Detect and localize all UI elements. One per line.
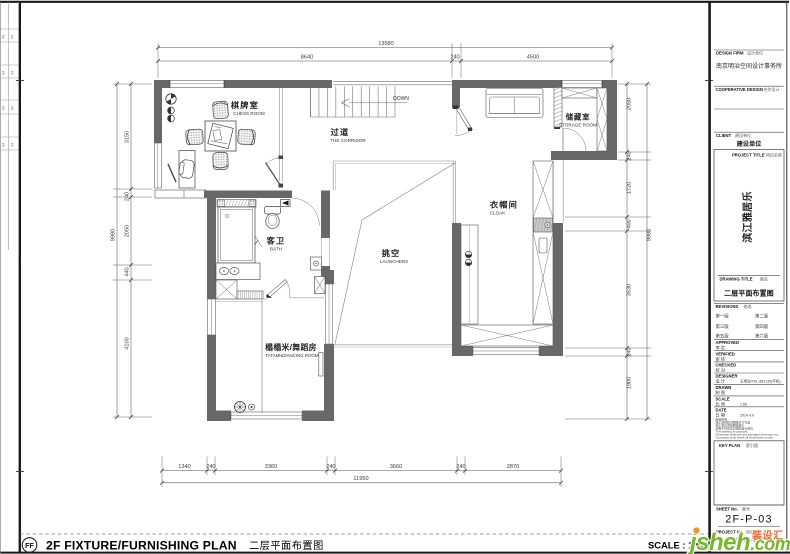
svg-text:3530: 3530	[627, 284, 633, 296]
svg-text:审 定: 审 定	[716, 344, 726, 351]
svg-text:8640: 8640	[301, 55, 313, 61]
svg-text:2F-P-03: 2F-P-03	[725, 514, 772, 526]
svg-text:1900: 1900	[627, 377, 633, 389]
svg-text:客卫: 客卫	[266, 236, 286, 246]
svg-text:400: 400	[627, 219, 633, 228]
svg-text:过道: 过道	[331, 127, 350, 137]
svg-text:11950: 11950	[353, 476, 368, 482]
svg-text:衣帽间: 衣帽间	[490, 200, 518, 210]
svg-text:设 计: 设 计	[716, 378, 726, 385]
svg-text:设计单位: 设计单位	[747, 50, 763, 56]
svg-text:第四版: 第四版	[755, 323, 769, 330]
svg-text:A3: A3	[2, 71, 6, 75]
svg-text:2014.4.9: 2014.4.9	[740, 413, 754, 417]
svg-text:装设汇: 装设汇	[751, 529, 784, 542]
svg-text:第六版: 第六版	[755, 333, 769, 340]
svg-text:A3: A3	[11, 106, 15, 110]
svg-text:项目名称: 项目名称	[766, 152, 782, 158]
svg-text:2050: 2050	[627, 98, 633, 110]
svg-text:BATH: BATH	[270, 247, 282, 252]
svg-text:3660: 3660	[390, 464, 402, 470]
svg-text:王明治/TEL:881135(手机): 王明治/TEL:881135(手机)	[740, 379, 781, 384]
svg-text:Contractor must check all dime: Contractor must check all dimensions on …	[716, 435, 774, 439]
svg-text:棋牌室: 棋牌室	[231, 100, 259, 110]
svg-text:修改: 修改	[744, 303, 752, 309]
svg-text:3360: 3360	[265, 464, 277, 470]
svg-text:REVISIONS: REVISIONS	[716, 304, 739, 309]
svg-text:KEY PLAN: KEY PLAN	[719, 443, 740, 448]
svg-text:A3: A3	[2, 143, 6, 147]
svg-text:DESIGN FIRM: DESIGN FIRM	[716, 51, 744, 56]
svg-text:2F FIXTURE/FURNISHING PLAN: 2F FIXTURE/FURNISHING PLAN	[46, 539, 237, 553]
svg-text:挑空: 挑空	[382, 248, 401, 258]
svg-text:240: 240	[456, 464, 465, 470]
svg-text:THE CORRIDOR: THE CORRIDOR	[330, 138, 366, 143]
svg-text:4100: 4100	[125, 337, 131, 349]
svg-text:PROJECT TITLE: PROJECT TITLE	[732, 153, 765, 158]
svg-text:图名: 图名	[760, 276, 768, 282]
svg-text:STORAGE ROOM: STORAGE ROOM	[559, 123, 597, 128]
svg-text:240: 240	[450, 55, 459, 61]
svg-text:3150: 3150	[125, 131, 131, 143]
svg-text:第一版: 第一版	[716, 313, 730, 320]
svg-text:第五版: 第五版	[716, 333, 730, 340]
svg-text:第三版: 第三版	[716, 323, 730, 330]
svg-text:240: 240	[627, 151, 633, 160]
svg-text:制 图: 制 图	[716, 389, 726, 396]
svg-text:CLOAK: CLOAK	[490, 211, 507, 216]
svg-text:440: 440	[125, 267, 131, 276]
svg-text:审 核: 审 核	[716, 355, 726, 362]
svg-text:滨江雅居乐: 滨江雅居乐	[741, 191, 754, 243]
svg-text:240: 240	[326, 464, 335, 470]
svg-text:A3: A3	[11, 143, 15, 147]
svg-text:CHESS ROOM: CHESS ROOM	[233, 111, 265, 116]
svg-text:1720: 1720	[627, 182, 633, 194]
svg-text:240: 240	[206, 464, 215, 470]
svg-text:9980: 9980	[647, 229, 653, 241]
svg-text:13580: 13580	[378, 41, 394, 47]
svg-text:1:60: 1:60	[740, 403, 747, 407]
svg-text:南京明治空间设计事务所: 南京明治空间设计事务所	[716, 62, 782, 70]
svg-text:COOPERATIVE DESIGN: COOPERATIVE DESIGN	[716, 87, 763, 92]
svg-text:LAUNCHERS: LAUNCHERS	[380, 259, 408, 264]
svg-text:A3: A3	[11, 35, 15, 39]
svg-text:A3: A3	[11, 71, 15, 75]
svg-text:A3: A3	[2, 35, 6, 39]
svg-text:二层平面布置图: 二层平面布置图	[724, 289, 774, 298]
svg-text:240: 240	[627, 347, 633, 356]
svg-text:校 对: 校 对	[716, 367, 726, 374]
svg-text:1340: 1340	[178, 464, 190, 470]
svg-text:第二版: 第二版	[755, 313, 769, 320]
svg-text:2870: 2870	[507, 464, 519, 470]
svg-text:储藏室: 储藏室	[565, 113, 591, 122]
svg-text:二层平面布置图: 二层平面布置图	[249, 540, 324, 552]
svg-text:2050: 2050	[125, 225, 131, 237]
svg-text:索引图: 索引图	[746, 442, 758, 448]
svg-text:4500: 4500	[527, 55, 539, 61]
svg-text:240: 240	[125, 192, 131, 201]
svg-text:9980: 9980	[111, 229, 117, 241]
svg-text:DRAWING TITLE: DRAWING TITLE	[719, 277, 752, 282]
svg-text:FF: FF	[25, 541, 34, 550]
svg-text:SHEET No.: SHEET No.	[716, 507, 738, 512]
svg-text:DOWN: DOWN	[393, 96, 409, 102]
svg-text:A3: A3	[2, 106, 6, 110]
svg-text:图号: 图号	[742, 506, 750, 512]
svg-text:CLIENT: CLIENT	[716, 133, 732, 138]
svg-text:TATAMI&DANCING ROOM: TATAMI&DANCING ROOM	[265, 353, 319, 358]
svg-text:合作设计: 合作设计	[764, 86, 780, 92]
svg-text:榻榻米/舞蹈房: 榻榻米/舞蹈房	[264, 342, 317, 352]
svg-text:建设单位: 建设单位	[735, 132, 751, 138]
svg-text:建设单位: 建设单位	[736, 140, 763, 148]
